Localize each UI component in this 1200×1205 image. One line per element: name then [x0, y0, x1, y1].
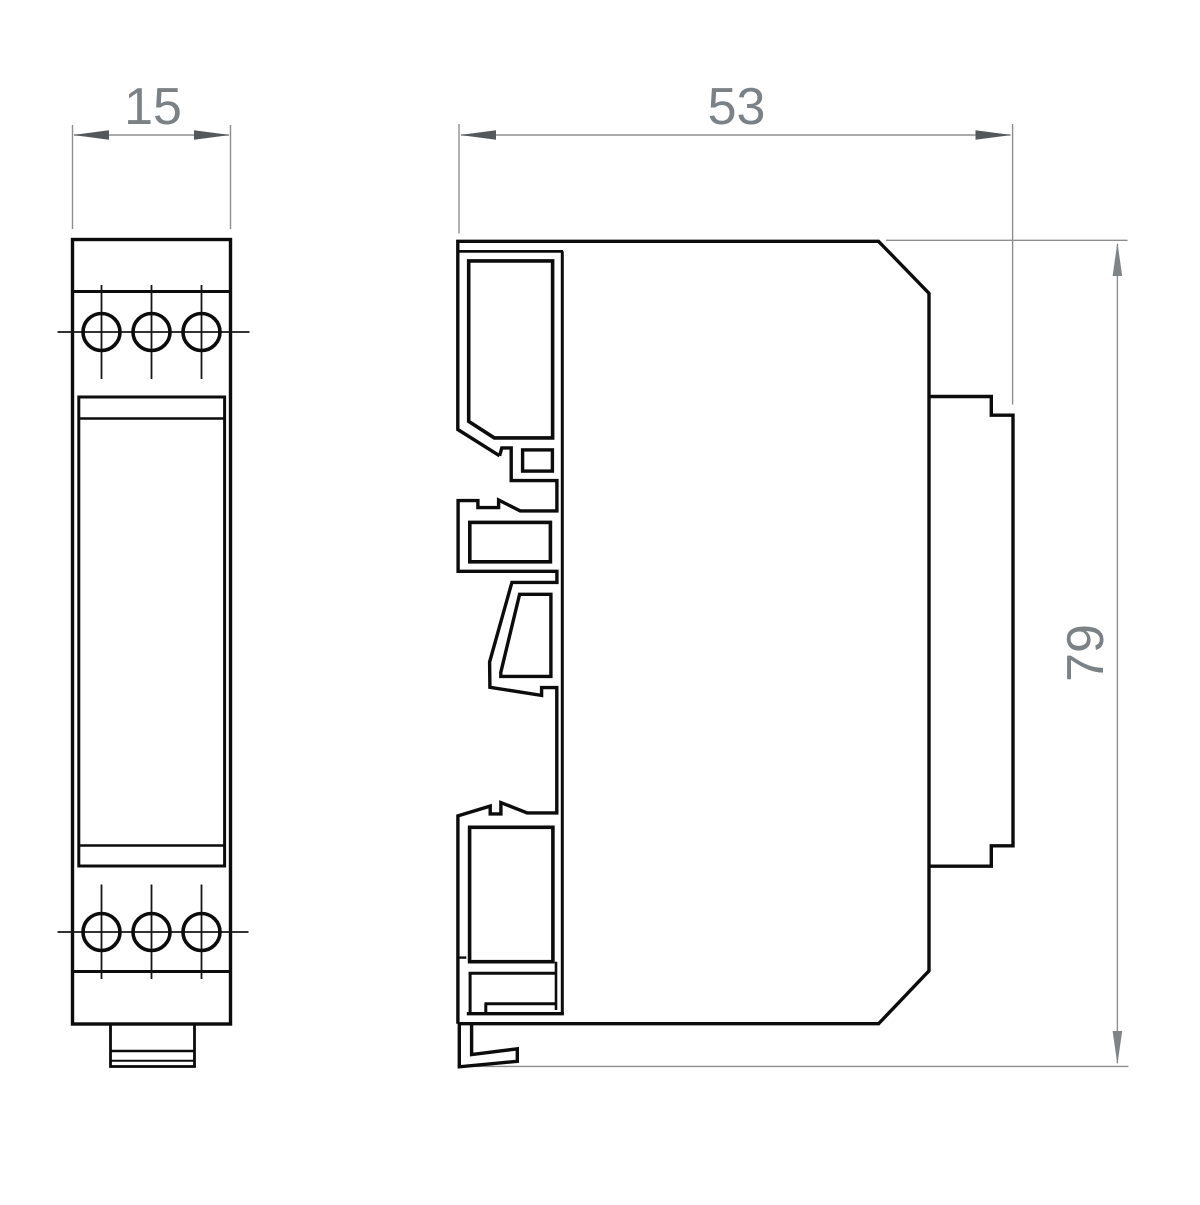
svg-text:79: 79	[1057, 624, 1115, 682]
svg-text:15: 15	[124, 78, 182, 136]
svg-text:53: 53	[708, 78, 766, 136]
